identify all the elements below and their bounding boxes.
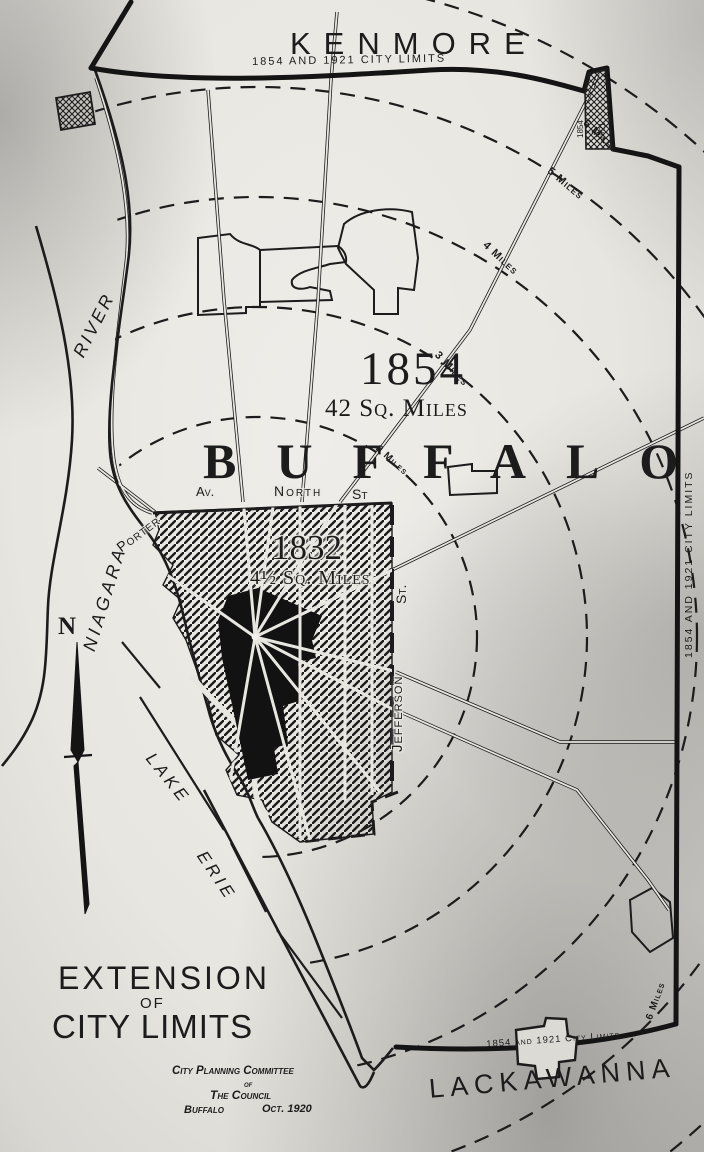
map-title-line1: EXTENSION: [58, 962, 270, 994]
credit-committee: City Planning Committee: [172, 1066, 294, 1078]
niagara-square-star: [252, 634, 259, 641]
north-street-label: North: [274, 484, 322, 498]
porter-av-label: Av.: [196, 485, 214, 498]
area-1832-size: 4½ Sq. Miles: [250, 568, 371, 588]
credit-council: The Council: [210, 1089, 271, 1101]
river-west-bank: [2, 226, 73, 766]
area-1854-size: 42 Sq. Miles: [325, 396, 468, 421]
patch-1921-label: 1921: [598, 122, 607, 140]
hatched-patches: [56, 69, 612, 149]
jefferson-st-abbr-label: St.: [394, 585, 408, 604]
north-street-st-label: St: [352, 487, 367, 501]
map-title-line3: CITY LIMITS: [52, 1010, 253, 1043]
city-limits-right-label: 1854 AND 1921 CITY LIMITS: [684, 470, 695, 658]
credit-date: Oct. 1920: [262, 1104, 312, 1115]
compass-n-label: N: [58, 614, 76, 639]
jefferson-street-label: Jefferson: [390, 676, 405, 752]
harbor-inner-shore: [258, 818, 393, 1070]
area-1832-year: 1832: [272, 530, 342, 565]
map-canvas: KENMORE 1854 AND 1921 CITY LIMITS 6 Mile…: [0, 0, 704, 1152]
area-1854-year: 1854: [360, 346, 466, 393]
credit-buffalo: Buffalo: [184, 1105, 224, 1116]
north-arrow: [64, 642, 92, 914]
buffalo-label: BUFFALO: [203, 436, 704, 486]
patch-1854-label: 1854: [577, 120, 585, 138]
